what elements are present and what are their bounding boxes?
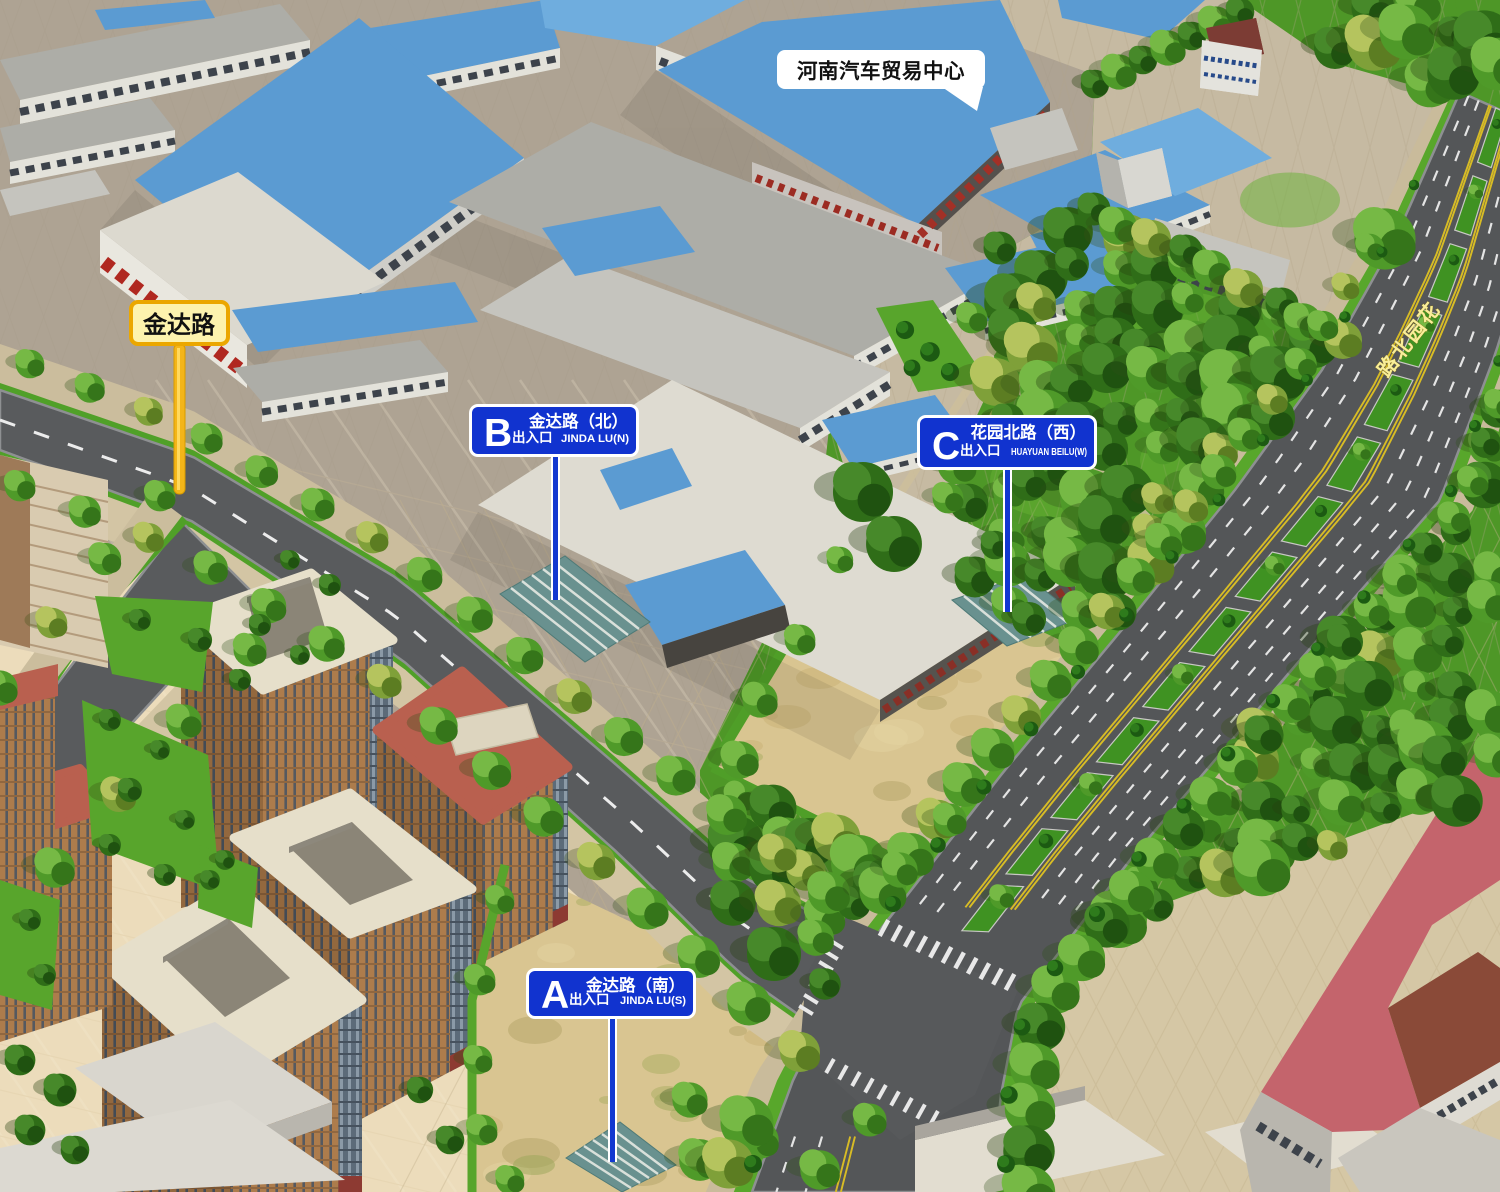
svg-text:河南汽车贸易中心: 河南汽车贸易中心 [797, 59, 965, 83]
svg-text:出入口: 出入口 [960, 442, 1001, 458]
svg-text:A: A [541, 974, 569, 1017]
svg-text:JINDA LU(S): JINDA LU(S) [620, 995, 686, 1007]
svg-text:C: C [932, 425, 960, 468]
svg-text:金达路（南）: 金达路（南） [585, 975, 685, 995]
svg-text:金达路（北）: 金达路（北） [528, 411, 628, 431]
svg-text:JINDA LU(N): JINDA LU(N) [561, 433, 629, 445]
svg-text:B: B [484, 412, 512, 455]
svg-text:金达路: 金达路 [142, 311, 216, 339]
svg-text:出入口: 出入口 [512, 429, 553, 445]
svg-text:花园北路（西）: 花园北路（西） [971, 422, 1087, 442]
svg-text:HUAYUAN BEILU(W): HUAYUAN BEILU(W) [1011, 447, 1087, 458]
